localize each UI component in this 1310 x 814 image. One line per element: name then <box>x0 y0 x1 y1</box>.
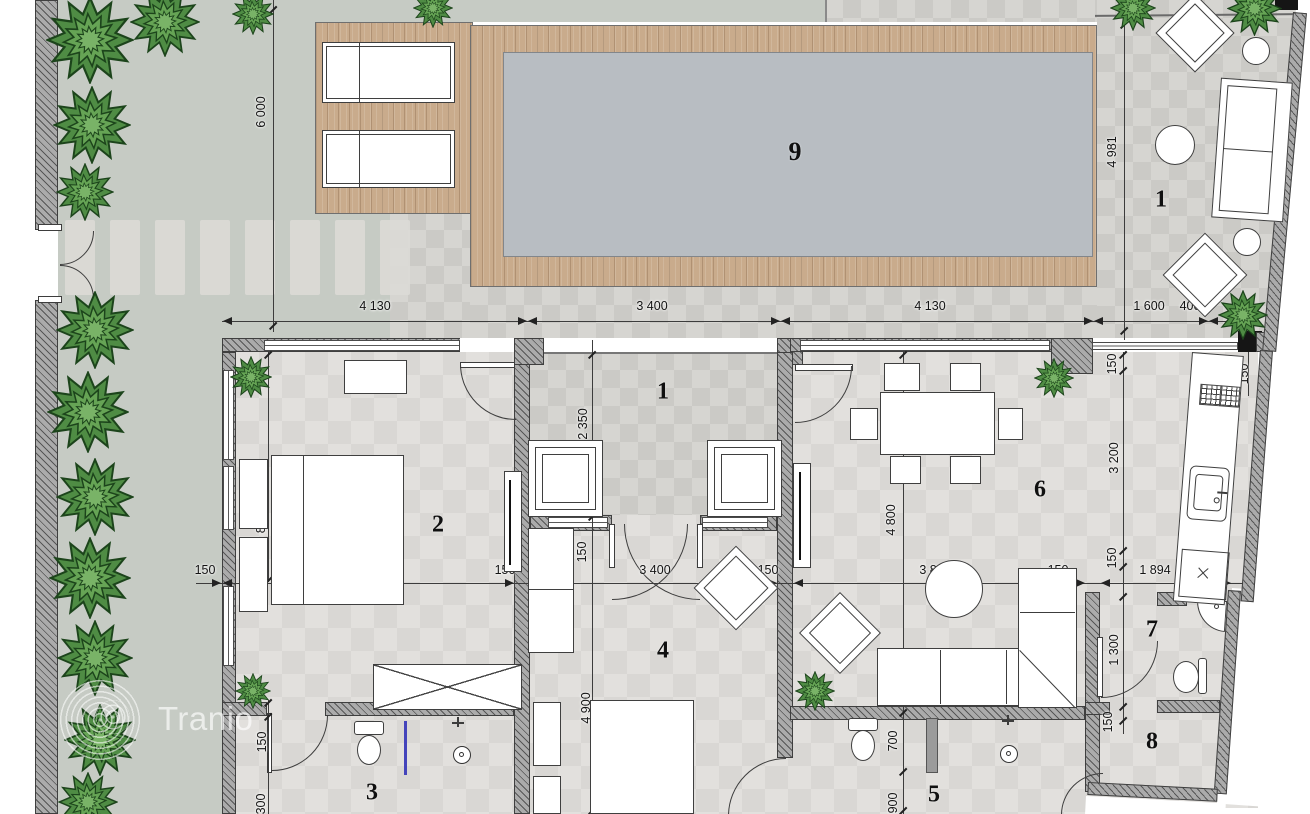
nightstand <box>533 776 561 814</box>
dim-arrow <box>518 317 527 325</box>
porch-pier <box>514 338 544 365</box>
dim-arrow <box>1101 579 1110 587</box>
terrace-side-table <box>1242 37 1270 65</box>
tree-icon <box>49 537 131 619</box>
shower-glass <box>404 721 407 775</box>
toilet-icon <box>851 730 875 761</box>
shower-head-icon <box>1007 715 1009 725</box>
room-label-terrace: 1 <box>1155 187 1167 214</box>
kitchen-window-strip <box>1092 342 1238 350</box>
terrace-side-table <box>1233 228 1261 256</box>
dresser <box>344 360 407 394</box>
room-label-bedroom: 2 <box>432 512 444 539</box>
corner-sofa <box>1018 568 1077 708</box>
tree-icon <box>1227 0 1282 36</box>
dimension-label: 6 000 <box>254 96 268 127</box>
dim-arrow <box>223 317 232 325</box>
stove-icon <box>1219 385 1241 407</box>
sofa-seam <box>1020 612 1075 613</box>
porch-armchair <box>528 440 603 517</box>
tree-icon <box>56 291 134 369</box>
coffee-table <box>925 560 983 618</box>
door-opening <box>460 338 514 352</box>
dimension-label: 1 894 <box>1139 563 1170 577</box>
paver <box>110 220 140 295</box>
dim-arrow <box>781 317 790 325</box>
room-label-pool: 9 <box>789 137 802 167</box>
tree-icon <box>56 458 134 536</box>
dimension-label: 1 600 <box>1133 299 1164 313</box>
wardrobe <box>528 528 574 653</box>
closet <box>793 463 811 568</box>
tree-icon <box>1110 0 1156 31</box>
bedroom-window <box>264 340 460 351</box>
tree-icon <box>47 371 129 453</box>
living-window <box>800 340 1050 351</box>
dim-arrow <box>212 579 221 587</box>
dimension-label: 2 350 <box>576 408 590 439</box>
room-label-hall: 4 <box>657 638 669 665</box>
plant-icon <box>795 671 835 711</box>
dim-arrow <box>223 579 232 587</box>
terrace-sofa <box>1211 78 1293 223</box>
outside-area <box>1086 808 1310 814</box>
tree-icon <box>232 0 274 35</box>
dimension-label: 4 981 <box>1105 136 1119 167</box>
wc-store-wall <box>1157 700 1220 713</box>
left-wall-window <box>223 466 234 530</box>
garden-fence-line <box>825 0 827 22</box>
sliding-door-track <box>799 472 801 560</box>
bed <box>271 455 404 605</box>
gate-leaf <box>38 224 62 231</box>
left-wall-window <box>223 586 234 666</box>
wardrobe <box>373 664 522 710</box>
dining-chair <box>890 456 921 484</box>
tree-icon <box>413 0 453 28</box>
sun-lounger <box>322 130 455 188</box>
toilet-icon <box>1173 661 1199 693</box>
dim-arrow <box>1209 317 1218 325</box>
porch-armchair <box>707 440 782 517</box>
room-label-bath-right: 5 <box>928 782 940 809</box>
nightstand <box>239 537 268 612</box>
closet <box>504 471 522 572</box>
living-porch-wall <box>777 352 793 758</box>
dimension-label: 3 400 <box>639 563 670 577</box>
dimension-label: 700 <box>886 731 900 752</box>
garden-top-band <box>390 0 825 22</box>
toilet-icon <box>354 721 384 735</box>
porch-roof-line <box>530 352 777 354</box>
sun-lounger <box>322 42 455 103</box>
dim-arrow <box>771 317 780 325</box>
dim-arrow <box>505 579 514 587</box>
dimension-label: 4 800 <box>884 504 898 535</box>
room-label-wc: 7 <box>1146 617 1158 644</box>
dimension-label: 3 400 <box>636 299 667 313</box>
dimension-line <box>1124 20 1125 340</box>
room-label-porch: 1 <box>657 379 669 406</box>
pool-side-pavement <box>470 287 1097 338</box>
dimension-label: 150 <box>195 563 216 577</box>
dimension-label: 4 130 <box>914 299 945 313</box>
front-window <box>548 517 608 528</box>
paver <box>335 220 365 295</box>
floor-plan: 4 130 3 400 4 130 1 600 400 150 3 830 15… <box>0 0 1310 814</box>
dining-chair <box>850 408 878 440</box>
dimension-label: 900 <box>886 793 900 814</box>
dimension-label: 150 <box>575 542 589 563</box>
nightstand <box>533 702 561 766</box>
sliding-door-track <box>509 480 511 565</box>
terrace-round-table <box>1155 125 1195 165</box>
dim-arrow <box>528 317 537 325</box>
toilet-icon <box>1198 658 1207 694</box>
dimension-label: 3 200 <box>1107 442 1121 473</box>
paver <box>380 220 410 295</box>
dining-chair <box>950 456 981 484</box>
tree-icon <box>130 0 200 57</box>
dimension-label: 1 300 <box>1107 634 1121 665</box>
shower-drain-icon <box>1006 751 1011 756</box>
dimension-label: 150 <box>1105 354 1119 375</box>
plant-icon <box>230 356 272 398</box>
shower-partition <box>926 718 938 773</box>
bed <box>590 700 694 814</box>
dimension-label: 300 <box>254 794 268 814</box>
tranio-logo-icon <box>96 700 130 734</box>
tree-icon <box>58 772 118 814</box>
dining-chair <box>884 363 920 391</box>
paver <box>245 220 275 295</box>
dim-arrow <box>794 579 803 587</box>
dimension-label: 150 <box>1101 712 1115 733</box>
paver <box>290 220 320 295</box>
dining-chair <box>998 408 1023 440</box>
top-pavement-strip <box>825 0 1097 22</box>
shower-drain-icon <box>459 752 464 757</box>
tree-icon <box>1218 290 1268 340</box>
paver <box>155 220 185 295</box>
dim-arrow <box>1084 317 1093 325</box>
toilet-icon <box>357 735 381 765</box>
sofa-seam <box>1006 650 1007 704</box>
tree-icon <box>46 0 134 84</box>
dining-table <box>880 392 995 455</box>
dim-arrow <box>1094 317 1103 325</box>
paver <box>200 220 230 295</box>
dim-arrow <box>1076 579 1085 587</box>
tree-icon <box>56 163 114 221</box>
plant-icon <box>1034 358 1074 398</box>
dimension-line <box>273 0 274 332</box>
front-window <box>702 517 768 528</box>
watermark-brand: Tranio <box>158 700 253 738</box>
dimension-label: 4 130 <box>359 299 390 313</box>
dimension-label: 150 <box>255 732 269 753</box>
room-label-living: 6 <box>1034 477 1046 504</box>
nightstand <box>239 459 268 529</box>
dining-chair <box>950 363 981 391</box>
sofa-seam <box>940 650 941 704</box>
dim-arrow <box>1199 317 1208 325</box>
room-label-store: 8 <box>1146 729 1158 756</box>
shower-head-icon <box>457 717 459 727</box>
dimension-label: 150 <box>1105 548 1119 569</box>
tree-icon <box>53 86 131 164</box>
room-label-bath-left: 3 <box>366 780 378 807</box>
dimension-line <box>1123 352 1124 734</box>
